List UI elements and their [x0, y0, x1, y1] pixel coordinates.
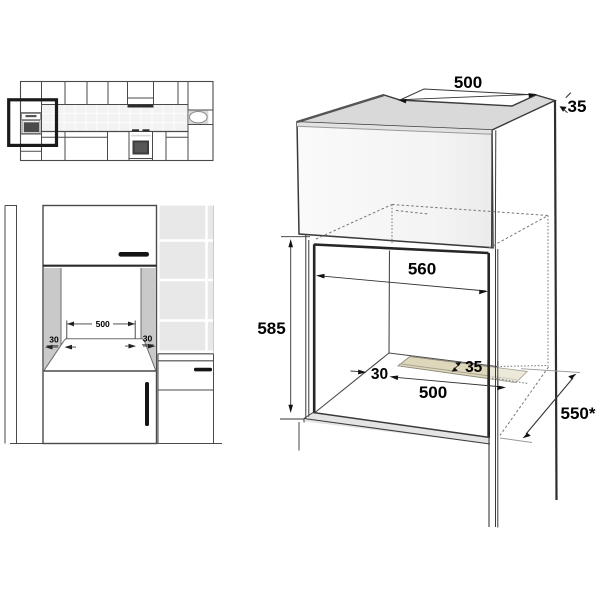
svg-text:500: 500: [96, 319, 110, 329]
svg-text:560: 560: [408, 260, 436, 279]
svg-text:30: 30: [143, 333, 153, 343]
svg-text:500: 500: [419, 383, 447, 402]
svg-text:30: 30: [49, 334, 59, 344]
svg-text:35: 35: [465, 359, 483, 376]
svg-text:30: 30: [371, 366, 388, 383]
svg-text:500: 500: [454, 73, 482, 92]
svg-text:35: 35: [568, 97, 587, 116]
svg-text:585: 585: [257, 319, 285, 338]
svg-text:550*: 550*: [561, 404, 596, 423]
